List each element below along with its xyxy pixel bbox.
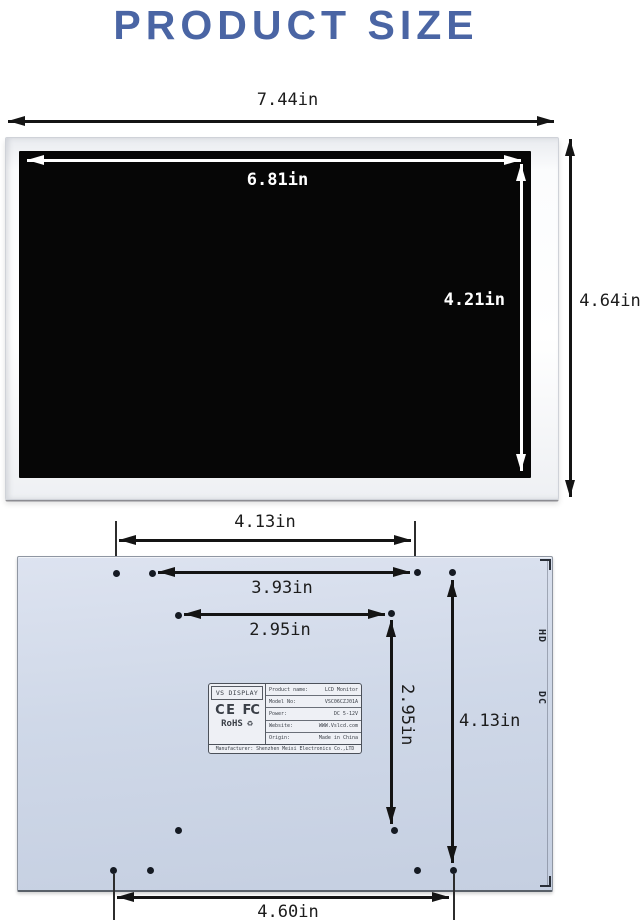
- monitor-front-frame: [5, 137, 559, 500]
- spec-label: Origin:: [269, 735, 290, 741]
- panel-edge-line: [547, 560, 548, 887]
- spec-row: Power: DC 5-12V: [266, 708, 361, 720]
- mounting-hole: [449, 569, 456, 576]
- rohs-row: RoHS ♻: [221, 719, 253, 729]
- spec-label-sticker: VS DISPLAY CE FC RoHS ♻ Product name: LC…: [208, 683, 362, 754]
- ce-mark-icon: CE: [215, 703, 236, 718]
- spec-label: Model No:: [269, 699, 296, 705]
- dim-label-vertical-outer-span: 4.13in: [459, 712, 529, 732]
- port-label-hd: HD: [536, 629, 547, 643]
- mounting-hole: [149, 570, 156, 577]
- product-size-diagram: PRODUCT SIZE 7.44in 6.81in 4.21in 4.64in…: [0, 0, 640, 924]
- dim-arrow-screen-width: [27, 159, 521, 162]
- spec-label: Website:: [269, 723, 293, 729]
- spec-row: Product name: LCD Monitor: [266, 684, 361, 696]
- mounting-hole: [110, 867, 117, 874]
- extension-line: [113, 874, 115, 920]
- dim-arrow-upper-hole-span: [158, 571, 410, 574]
- dim-arrow-screen-height: [520, 164, 523, 471]
- dim-arrow-inner-hole-span: [184, 613, 385, 616]
- mounting-hole: [391, 827, 398, 834]
- monitor-screen: [19, 151, 531, 478]
- dim-label-outer-height: 4.64in: [579, 292, 640, 312]
- spec-row: Origin: Made in China: [266, 733, 361, 744]
- dim-arrow-top-hole-span: [119, 539, 411, 542]
- spec-label: Product name:: [269, 687, 308, 693]
- corner-mark: [540, 876, 551, 887]
- manufacturer-line: Manufacturer: Shenzhen Meisi Electronics…: [209, 744, 361, 753]
- sticker-main: VS DISPLAY CE FC RoHS ♻ Product name: LC…: [209, 684, 361, 744]
- dim-label-screen-width: 6.81in: [220, 171, 335, 191]
- spec-value: VSC06CZJ01A: [325, 699, 358, 705]
- recycle-icon: ♻: [247, 719, 253, 729]
- port-label-dc: DC: [536, 691, 547, 705]
- dim-arrow-outer-height: [569, 139, 572, 497]
- spec-row: Model No: VSC06CZJ01A: [266, 696, 361, 708]
- fcc-mark-icon: FC: [243, 703, 259, 718]
- dim-arrow-vertical-inner-span: [390, 620, 393, 824]
- dim-label-top-hole-span: 4.13in: [205, 513, 325, 533]
- sticker-brand-column: VS DISPLAY CE FC RoHS ♻: [209, 684, 266, 744]
- dim-label-inner-hole-span: 2.95in: [220, 621, 340, 641]
- rohs-mark: RoHS: [221, 719, 243, 729]
- mounting-hole: [175, 612, 182, 619]
- spec-label: Power:: [269, 711, 287, 717]
- spec-value: WWW.Vslcd.com: [319, 723, 358, 729]
- dim-arrow-bottom-hole-span: [117, 896, 449, 899]
- mounting-hole: [450, 867, 457, 874]
- dim-label-screen-height: 4.21in: [385, 291, 505, 311]
- dim-label-vertical-inner-span: 2.95in: [396, 684, 416, 764]
- extension-line: [453, 874, 455, 920]
- dim-label-upper-hole-span: 3.93in: [222, 579, 342, 599]
- mounting-hole: [414, 569, 421, 576]
- mounting-hole: [147, 867, 154, 874]
- brand-box: VS DISPLAY: [211, 686, 263, 700]
- mounting-hole: [388, 610, 395, 617]
- spec-value: Made in China: [319, 735, 358, 741]
- dim-arrow-vertical-outer-span: [451, 580, 454, 863]
- sticker-spec-column: Product name: LCD Monitor Model No: VSC0…: [266, 684, 361, 744]
- mounting-hole: [175, 827, 182, 834]
- page-title: PRODUCT SIZE: [0, 2, 592, 49]
- spec-value: LCD Monitor: [325, 687, 358, 693]
- cert-logo-row: CE FC: [215, 703, 259, 718]
- spec-row: Website: WWW.Vslcd.com: [266, 721, 361, 733]
- dim-label-outer-width: 7.44in: [230, 91, 345, 111]
- dim-arrow-outer-width: [8, 120, 554, 123]
- mounting-hole: [414, 867, 421, 874]
- spec-value: DC 5-12V: [334, 711, 358, 717]
- dim-label-bottom-hole-span: 4.60in: [228, 903, 348, 923]
- mounting-hole: [113, 570, 120, 577]
- corner-mark: [540, 559, 551, 570]
